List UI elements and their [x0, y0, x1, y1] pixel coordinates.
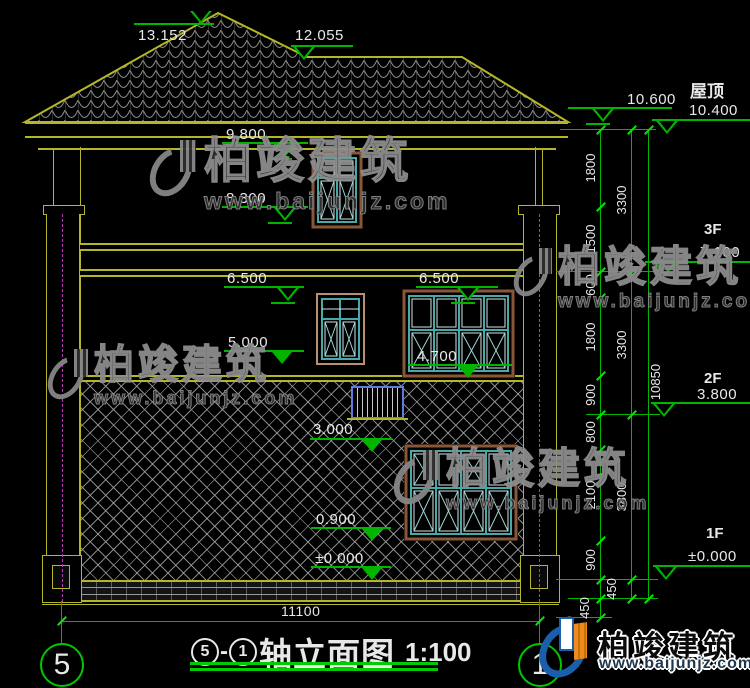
level-10600-line: [568, 107, 672, 109]
watermark-top: 柏竣建筑 www.baijunjz.com: [152, 138, 451, 213]
level-13152: 13.152: [138, 27, 187, 44]
pilaster-left-base-panel: [52, 565, 70, 589]
level-6500-right-bar: [451, 302, 475, 304]
level-0900: 0.900: [316, 511, 356, 528]
dim-ext-top: [560, 129, 656, 130]
railing-sill: [347, 418, 408, 420]
dim-tick: [644, 125, 654, 135]
base-brick-band: [81, 580, 535, 602]
level-10600-symbol: [592, 109, 614, 122]
dim-tick: [596, 536, 606, 546]
watermark-bottom: 柏竣建筑 www.baijunjz.com: [396, 448, 649, 512]
watermark-left: 柏竣建筑 www.baijunjz.com: [50, 345, 297, 407]
title-underline-2: [190, 668, 438, 671]
level-3800-symbol: [653, 404, 675, 417]
level-0000: ±0.000: [315, 550, 364, 567]
level-4700: 4.700: [417, 348, 457, 365]
dim-450a: 450: [604, 567, 618, 611]
balcony-railing: [351, 386, 404, 419]
level-0900-symbol: [362, 529, 382, 541]
brand-logo-icon: [516, 248, 552, 300]
level-0000-right-symbol: [655, 567, 677, 580]
floor-label-3f: 3F: [704, 221, 722, 238]
level-3800: 3.800: [697, 386, 737, 403]
level-6500-right: 6.500: [419, 270, 459, 287]
belt-course-3f-upper: [80, 243, 536, 251]
level-3000: 3.000: [313, 421, 353, 438]
title-underline-1: [190, 662, 438, 665]
corner-stub-left: [53, 148, 54, 207]
pilaster-right-base: [520, 555, 560, 603]
ground-line: [42, 600, 559, 602]
level-0000-symbol: [362, 568, 382, 580]
watermark-url: www.baijunjz.com: [94, 389, 297, 407]
watermark-brand: 柏竣建筑: [446, 448, 649, 490]
corner-stub-right: [542, 148, 543, 207]
dim-tick: [596, 410, 606, 420]
dim-tick: [596, 371, 606, 381]
watermark-url: www.baijunjz.com: [558, 292, 750, 311]
level-13152-symbol: [190, 11, 212, 24]
brand-logo-icon: [50, 349, 88, 405]
dim-900b: 900: [583, 538, 597, 582]
dim-1800b: 1800: [583, 315, 597, 359]
dim-3300a: 3300: [614, 178, 628, 222]
dim-tick: [596, 202, 606, 212]
cad-elevation-drawing: 13.152 12.055 9.800 8.300 6.500 6.500 5.…: [0, 0, 750, 688]
watermark-url: www.baijunjz.com: [446, 494, 649, 512]
watermark-url: www.baijunjz.com: [204, 190, 451, 213]
dim-tick: [627, 410, 637, 420]
axis-bubble-left: 5: [40, 643, 84, 687]
level-6500-left-bar: [271, 302, 295, 304]
dim-ext-2f: [586, 414, 660, 415]
level-6500-left-symbol: [277, 288, 299, 301]
level-10400: 10.400: [689, 102, 738, 119]
floor-label-1f: 1F: [706, 525, 724, 542]
level-4700-symbol: [458, 366, 478, 378]
level-10600: 10.600: [627, 91, 676, 108]
dim-line-mid: [631, 130, 632, 599]
dim-tick: [627, 575, 637, 585]
floor-label-2f: 2F: [704, 370, 722, 387]
level-10400-symbol: [656, 121, 678, 134]
brand-url-color: www.baijunjz.com: [599, 655, 750, 673]
level-8300-bar: [268, 222, 292, 224]
axis-bubble-left-label: 5: [54, 648, 71, 682]
brand-logo-icon: [152, 140, 196, 198]
dim-1800a: 1800: [583, 146, 597, 190]
centerline-left: [62, 214, 63, 602]
floor-label-roof: 屋顶: [690, 77, 724, 102]
watermark-brand: 柏竣建筑: [204, 138, 451, 186]
dim-3300b: 3300: [614, 323, 628, 367]
level-6500-right-symbol: [457, 288, 479, 301]
brand-logo-icon: [396, 450, 438, 508]
window-2f-left: [316, 293, 365, 365]
level-12055-symbol: [293, 47, 315, 60]
dim-width-line: [61, 621, 540, 622]
dim-total-width: 11100: [281, 603, 320, 619]
brand-logo-color-icon: [541, 615, 601, 673]
level-0000-right: ±0.000: [688, 548, 737, 565]
watermark-right: 柏竣建筑 www.baijunjz.com: [516, 246, 750, 311]
dim-total-height: 10850: [648, 359, 662, 405]
dim-tick: [627, 594, 637, 604]
belt-course-3f-lower: [80, 269, 536, 277]
level-10600-bar: [586, 123, 610, 125]
level-6500-left: 6.500: [227, 270, 267, 287]
level-12055: 12.055: [295, 27, 344, 44]
watermark-brand: 柏竣建筑: [94, 345, 297, 385]
dim-tick: [627, 125, 637, 135]
watermark-brand: 柏竣建筑: [558, 246, 750, 288]
dim-tick: [644, 594, 654, 604]
level-3000-symbol: [362, 440, 382, 452]
